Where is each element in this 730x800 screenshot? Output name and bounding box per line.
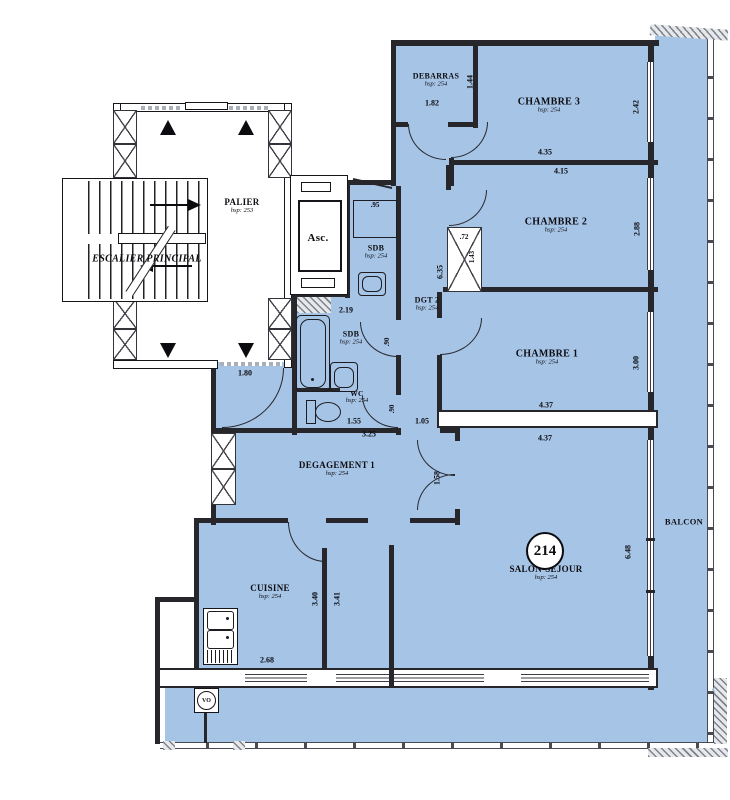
wall [326, 518, 368, 523]
dim-label: 3.00 [632, 356, 641, 370]
vo-box: VO [194, 688, 219, 713]
column [113, 298, 137, 329]
dim-label: 1.58 [433, 471, 442, 485]
palier-door-leaf [185, 102, 228, 110]
wall [391, 40, 659, 46]
dim-label: .90 [383, 338, 391, 347]
dim-label: .72 [460, 233, 469, 241]
bathtub [296, 315, 330, 392]
dim-label: 4.15 [554, 167, 568, 176]
wall [396, 292, 401, 320]
wall [410, 518, 460, 523]
dim-label: 2.42 [632, 100, 641, 114]
wall [396, 428, 401, 435]
washbasin [330, 362, 358, 392]
wall [396, 355, 401, 395]
palier-bottom-wall [113, 360, 218, 369]
room-label-sdb-haut: SDB hsp: 254 [365, 245, 388, 260]
direction-triangle [238, 120, 254, 135]
wall [155, 597, 199, 602]
wall [389, 545, 394, 688]
room-label-balcon: BALCON [665, 517, 703, 526]
stair-arrow-up [150, 204, 190, 206]
elevator-counterweight [301, 182, 331, 192]
dim-label: 4.35 [538, 148, 552, 157]
wall [437, 355, 442, 413]
column [113, 144, 137, 178]
dim-label: 1.80 [238, 369, 252, 378]
column [268, 298, 292, 329]
column [113, 110, 137, 144]
washbasin [358, 272, 386, 296]
toilet [306, 399, 344, 425]
floor-plan: ‹ VO PALIER hsp: 253 ESCALIER PRINCIPAL … [0, 0, 730, 800]
room-label-chambre1: CHAMBRE 1 hsp: 254 [516, 348, 578, 365]
entrance-threshold [220, 362, 282, 366]
room-label-escalier: ESCALIER PRINCIPAL [92, 254, 201, 265]
room-label-asc: Asc. [307, 232, 328, 244]
balcony-railing [707, 38, 714, 750]
dim-label: 2.68 [260, 656, 274, 665]
glazed-partition [229, 106, 269, 110]
tiled-area [297, 297, 331, 313]
room-label-cuisine: CUISINE hsp: 254 [250, 584, 290, 600]
dim-label: 1.82 [425, 99, 439, 108]
window [245, 674, 307, 682]
structure-corner [648, 748, 728, 757]
wall [391, 40, 396, 186]
apartment-number-badge: 214 [526, 532, 564, 570]
wall [396, 122, 408, 127]
dim-label: 2.19 [339, 306, 353, 315]
dim-label: 2.88 [633, 222, 642, 236]
room-label-wc: WC hsp: 254 [346, 390, 369, 404]
dim-label: .95 [371, 201, 380, 209]
column [268, 144, 292, 178]
room-label-chambre3: CHAMBRE 3 hsp: 254 [518, 96, 580, 113]
dim-label: 1.05 [415, 417, 429, 426]
vo-label: VO [197, 691, 216, 710]
railing-post [233, 741, 245, 750]
wall [455, 428, 460, 441]
vo-duct-stem [204, 712, 207, 743]
window-mullion [646, 590, 655, 593]
closet [211, 469, 236, 505]
column [268, 110, 292, 144]
window [647, 312, 654, 392]
room-label-dgt2: DGT 2 hsp: 254 [415, 297, 440, 312]
dim-label: 6.48 [624, 545, 633, 559]
apartment-number: 214 [534, 543, 557, 560]
dim-label: 3.41 [333, 592, 342, 606]
dim-label: 3.40 [311, 592, 320, 606]
dim-label: 3.25 [362, 430, 376, 439]
section-marker: ‹ [711, 680, 716, 698]
direction-triangle [160, 343, 176, 358]
balcony-floor [165, 686, 713, 744]
dim-label: 1.43 [468, 251, 476, 263]
window [647, 178, 654, 270]
wall [155, 597, 160, 744]
wall [322, 548, 327, 668]
railing-post [163, 741, 175, 750]
window [521, 674, 649, 682]
wall [194, 518, 199, 688]
wall [437, 410, 658, 428]
column [268, 329, 292, 360]
window [336, 674, 484, 682]
elevator-door [301, 278, 335, 288]
wall [446, 165, 451, 190]
kitchen-sink [203, 608, 238, 665]
stair-arrow-down [152, 265, 192, 267]
wall [449, 160, 658, 165]
stair-arrow-up-head [188, 199, 201, 211]
window [647, 62, 654, 142]
room-label-palier: PALIER hsp: 253 [224, 198, 259, 214]
glazed-partition [141, 106, 183, 110]
balcony-floor [655, 36, 713, 744]
window [647, 440, 654, 656]
wall [194, 518, 288, 523]
room-label-debarras: DEBARRAS hsp: 254 [413, 73, 459, 88]
column [113, 329, 137, 360]
dim-label: .90 [388, 405, 396, 414]
dim-label: 6.35 [436, 265, 445, 279]
dim-label: 1.44 [466, 75, 475, 89]
window-mullion [646, 538, 655, 541]
wall [455, 509, 460, 525]
direction-triangle [160, 120, 176, 135]
dim-label: 4.37 [539, 401, 553, 410]
room-label-sdb: SDB hsp: 254 [340, 331, 363, 346]
dim-label: 4.37 [538, 434, 552, 443]
direction-triangle [238, 343, 254, 358]
closet [211, 433, 236, 469]
room-label-chambre2: CHAMBRE 2 hsp: 254 [525, 216, 587, 233]
wall [648, 40, 654, 62]
dim-label: 1.55 [347, 417, 361, 426]
room-label-degagement1: DEGAGEMENT 1 hsp: 254 [299, 461, 375, 477]
